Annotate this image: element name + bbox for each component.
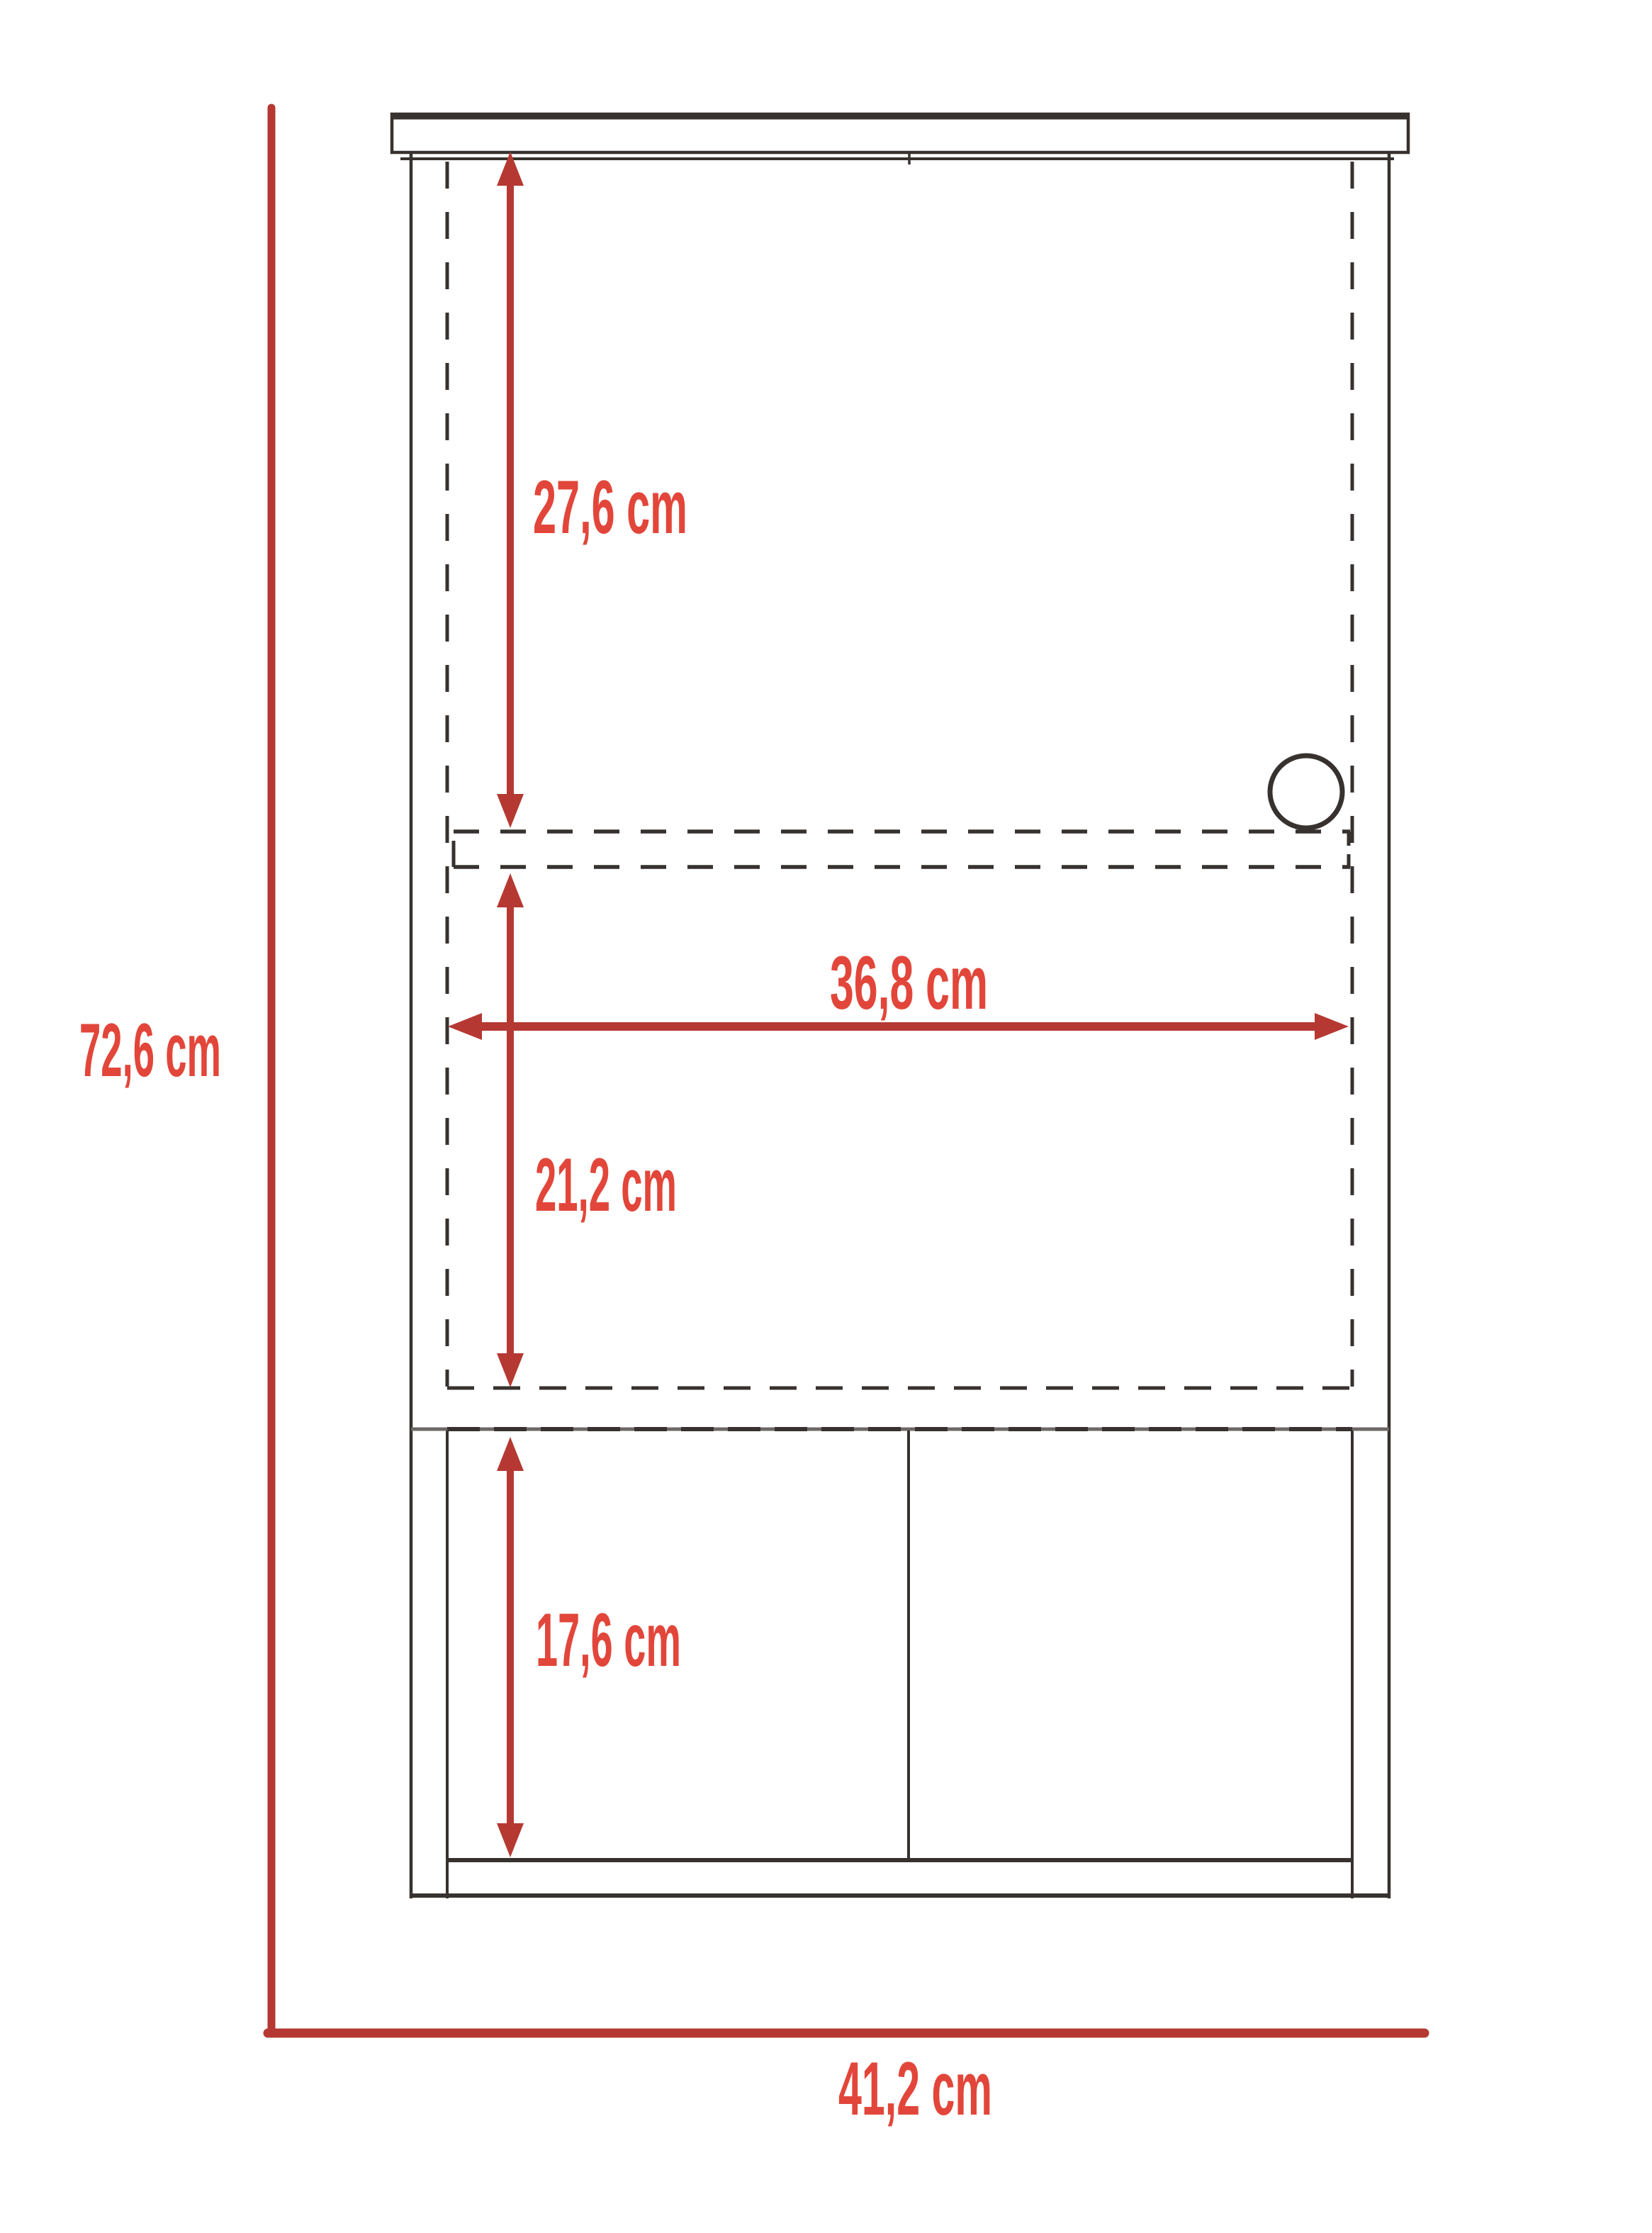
label-inner-top-height: 27,6 cm xyxy=(533,464,687,549)
label-inner-width: 36,8 cm xyxy=(830,940,988,1025)
label-inner-bottom-height: 17,6 cm xyxy=(536,1597,681,1682)
cabinet-dimension-diagram: 27,6 cm 36,8 cm 21,2 cm 17,6 cm 72,6 cm … xyxy=(0,0,1652,2233)
diagram-canvas: 27,6 cm 36,8 cm 21,2 cm 17,6 cm 72,6 cm … xyxy=(0,0,1652,2233)
top-panel xyxy=(392,114,1408,152)
background xyxy=(0,0,1652,2233)
label-inner-middle-height: 21,2 cm xyxy=(535,1142,677,1227)
label-overall-width: 41,2 cm xyxy=(838,2046,992,2131)
label-overall-height: 72,6 cm xyxy=(79,1007,221,1092)
